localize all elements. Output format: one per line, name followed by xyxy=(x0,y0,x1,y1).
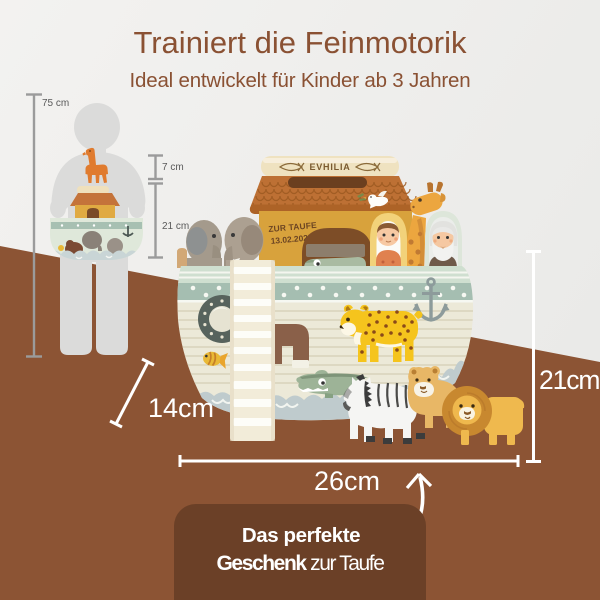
svg-text:21cm: 21cm xyxy=(539,365,599,395)
svg-text:Trainiert die Feinmotorik: Trainiert die Feinmotorik xyxy=(133,25,467,60)
svg-text:75 cm: 75 cm xyxy=(42,98,69,109)
svg-text:Das perfekte: Das perfekte xyxy=(242,524,360,547)
svg-text:EVHILIA: EVHILIA xyxy=(309,162,350,172)
svg-text:Ideal entwickelt für Kinder ab: Ideal entwickelt für Kinder ab 3 Jahren xyxy=(130,69,471,92)
svg-text:26cm: 26cm xyxy=(314,466,380,496)
svg-text:21 cm: 21 cm xyxy=(162,221,189,232)
svg-text:14cm: 14cm xyxy=(148,393,214,423)
svg-text:7 cm: 7 cm xyxy=(162,162,184,173)
svg-text:Geschenk zur Taufe: Geschenk zur Taufe xyxy=(216,552,384,575)
